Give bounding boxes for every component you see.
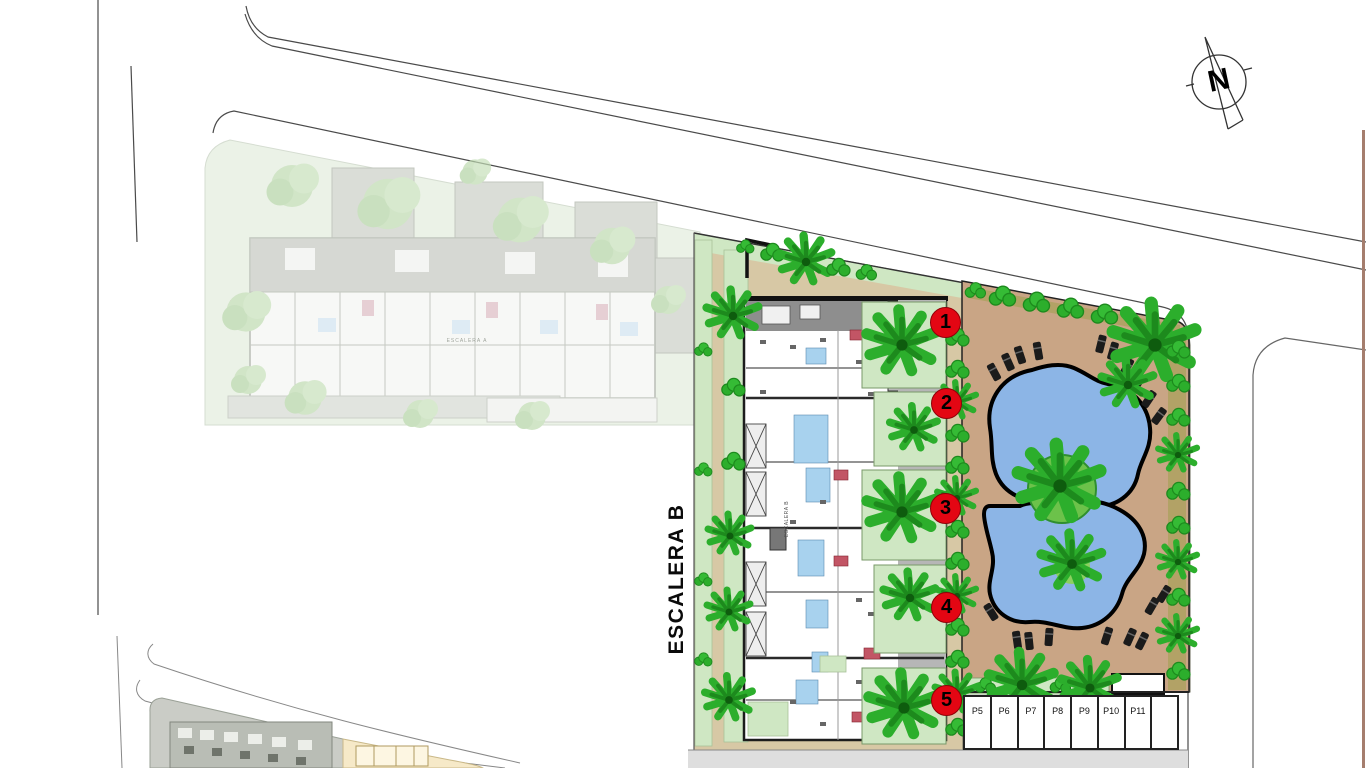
unit-marker-4[interactable]: 4 <box>931 592 962 623</box>
unit-marker-3[interactable]: 3 <box>930 493 961 524</box>
parking-stall-p11: P11 <box>1126 697 1153 748</box>
mini-building-gray <box>170 722 332 768</box>
building-a-inner-label: ESCALERA A <box>432 338 502 347</box>
parking-stall-p10: P10 <box>1099 697 1126 748</box>
unit-marker-5[interactable]: 5 <box>931 685 962 716</box>
compass-north-letter: N <box>1198 60 1241 103</box>
site-plan: ESCALERA B ESCALERA B ESCALERA A N 12345… <box>0 0 1366 768</box>
parking-stall-empty <box>1152 697 1177 748</box>
building-b-inner-label: ESCALERA B <box>784 488 794 550</box>
parking-stall-p8: P8 <box>1045 697 1072 748</box>
unit-marker-2[interactable]: 2 <box>931 388 962 419</box>
parking-stall-label: P11 <box>1126 706 1151 716</box>
parking-stall-label: P6 <box>992 706 1017 716</box>
parking-stall-p5: P5 <box>965 697 992 748</box>
parking-stall-label: P8 <box>1045 706 1070 716</box>
parking-stall-label: P9 <box>1072 706 1097 716</box>
escalera-b-label: ESCALERA B <box>665 499 691 659</box>
sidewalk <box>688 750 1188 768</box>
parking-stall-label: P7 <box>1019 706 1044 716</box>
mini-key-plan <box>117 636 520 768</box>
parking-stall-p6: P6 <box>992 697 1019 748</box>
right-edge-strip <box>1362 130 1365 768</box>
faded-site-escalera-a <box>205 140 700 430</box>
mini-building-cream <box>356 746 428 766</box>
parking-stall-label: P10 <box>1099 706 1124 716</box>
parking-stall-label: P5 <box>965 706 990 716</box>
parking-stall-p7: P7 <box>1019 697 1046 748</box>
parking-stall-p9: P9 <box>1072 697 1099 748</box>
unit-marker-1[interactable]: 1 <box>930 307 961 338</box>
parking-row: P5P6P7P8P9P10P11 <box>963 695 1179 750</box>
